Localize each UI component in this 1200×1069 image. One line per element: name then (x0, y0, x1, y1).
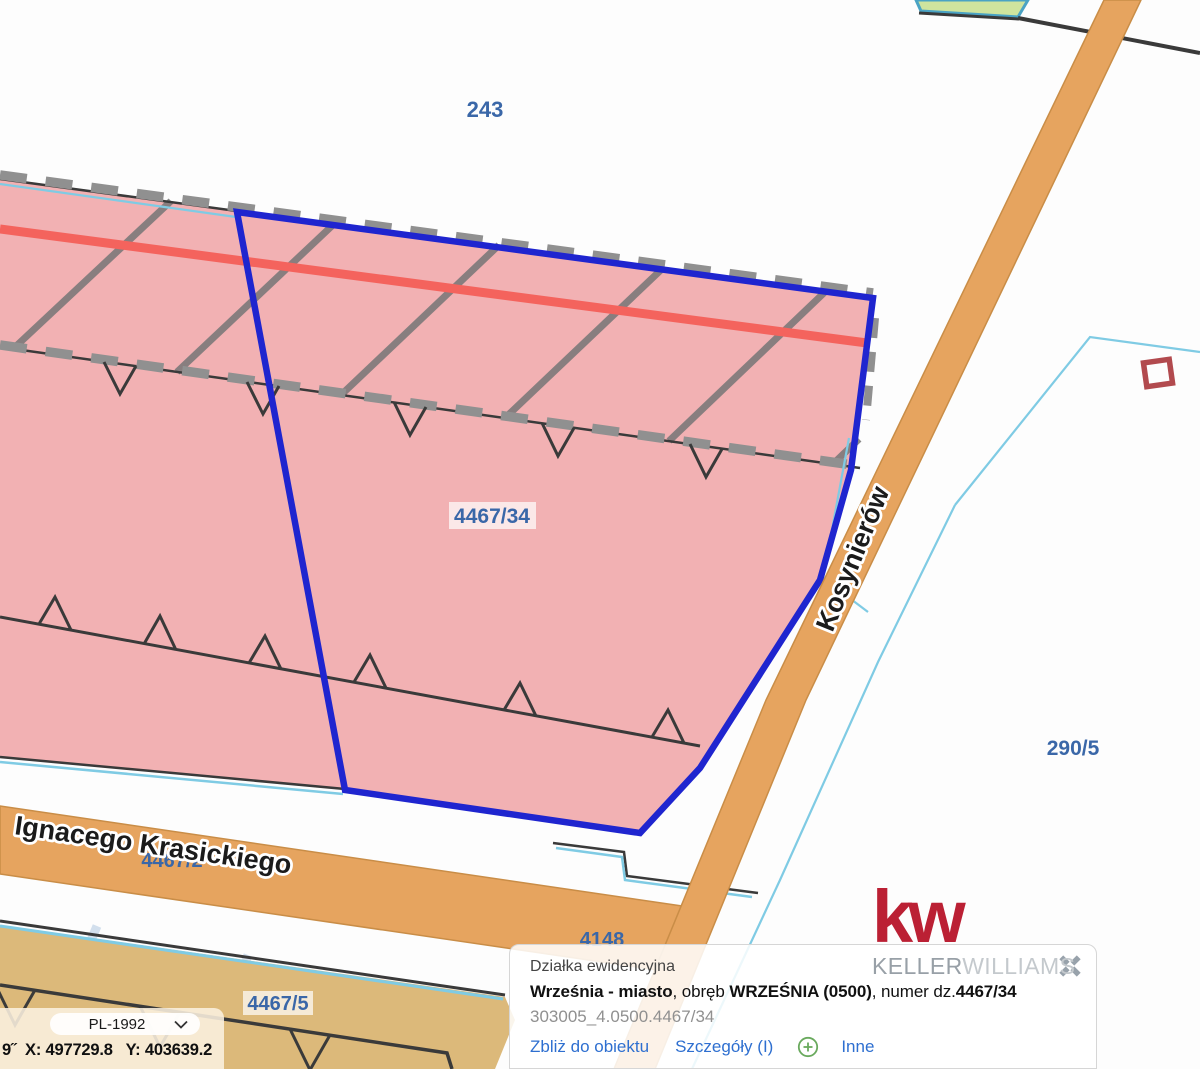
obreb-text: , obręb (673, 982, 730, 1001)
other-link[interactable]: Inne (841, 1037, 874, 1057)
parcel-label-4467-34: 4467/34 (454, 505, 530, 528)
parcel-description: Września - miasto, obręb WRZEŚNIA (0500)… (530, 982, 1078, 1002)
add-plus-icon[interactable] (797, 1036, 819, 1058)
gis-map-viewer: 4467/2 Ignacego Krasickiego Kosynierów 2… (0, 0, 1200, 1069)
close-icon[interactable] (1058, 954, 1082, 978)
crs-selector[interactable]: PL-1992 (50, 1013, 200, 1035)
chevron-down-icon (174, 1020, 188, 1029)
parcel-label-290-5: 290/5 (1047, 737, 1100, 760)
municipality: Września - miasto (530, 982, 673, 1001)
details-link[interactable]: Szczegóły (I) (675, 1037, 773, 1057)
zoom-to-object-link[interactable]: Zbliż do obiektu (530, 1037, 649, 1057)
popup-title: Działka ewidencyjna (530, 958, 1078, 976)
cursor-coordinates: 9˝ X: 497729.8 Y: 403639.2 (2, 1041, 212, 1060)
parcel-label-243: 243 (467, 97, 504, 122)
parcel-label-4467-5: 4467/5 (247, 993, 308, 1015)
crs-value: PL-1992 (50, 1016, 174, 1033)
parcel-info-popup: Działka ewidencyjna Września - miasto, o… (509, 944, 1097, 1069)
parcel-number: 4467/34 (956, 982, 1017, 1001)
parcel-identifier: 303005_4.0500.4467/34 (530, 1007, 1078, 1027)
map-canvas[interactable]: 4467/2 Ignacego Krasickiego Kosynierów 2… (0, 0, 1200, 1069)
district: WRZEŚNIA (0500) (729, 982, 871, 1001)
popup-links: Zbliż do obiektu Szczegóły (I) Inne (530, 1036, 1078, 1058)
coordinate-panel: PL-1992 9˝ X: 497729.8 Y: 403639.2 (0, 1008, 224, 1069)
numer-text: , numer dz. (872, 982, 956, 1001)
